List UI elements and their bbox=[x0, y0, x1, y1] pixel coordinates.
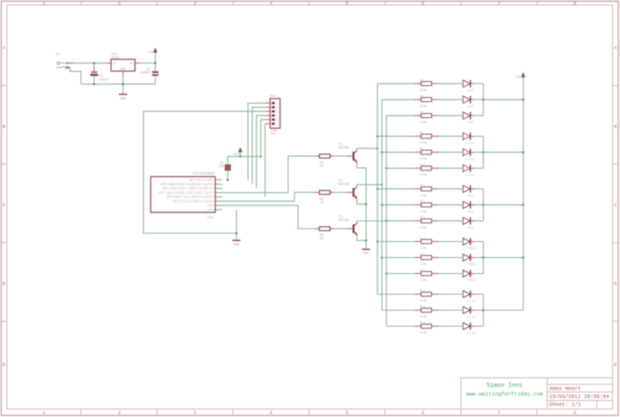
svg-text:+5V: +5V bbox=[147, 50, 153, 54]
svg-text:LED6: LED6 bbox=[467, 174, 474, 177]
svg-text:1: 1 bbox=[43, 1, 46, 7]
svg-text:150R: 150R bbox=[420, 263, 427, 266]
svg-text:150R: 150R bbox=[420, 174, 427, 177]
svg-text:VI: VI bbox=[113, 63, 117, 66]
svg-text:VO: VO bbox=[130, 63, 134, 66]
svg-text:Simon Inns: Simon Inns bbox=[486, 382, 522, 389]
svg-text:R15: R15 bbox=[420, 253, 426, 256]
svg-text:R9: R9 bbox=[420, 147, 424, 150]
svg-text:R11: R11 bbox=[420, 184, 426, 187]
svg-text:8: 8 bbox=[573, 1, 576, 7]
svg-text:E: E bbox=[614, 362, 617, 368]
svg-text:LED12: LED12 bbox=[467, 279, 476, 282]
svg-text:LED11: LED11 bbox=[467, 263, 476, 266]
svg-text:C: C bbox=[3, 203, 6, 209]
svg-text:VSS: VSS bbox=[207, 209, 213, 213]
svg-text:LED2: LED2 bbox=[467, 105, 474, 108]
svg-text:R12: R12 bbox=[420, 200, 426, 203]
svg-text:4: 4 bbox=[270, 410, 273, 416]
svg-text:GND: GND bbox=[233, 242, 239, 246]
svg-text:GND: GND bbox=[120, 68, 125, 71]
svg-text:R7: R7 bbox=[420, 111, 424, 114]
svg-text:150R: 150R bbox=[420, 194, 427, 197]
svg-text:5: 5 bbox=[346, 1, 349, 7]
svg-text:GP5/T1CKI/OSC1/CLKIN: GP5/T1CKI/OSC1/CLKIN bbox=[173, 199, 214, 204]
svg-text:PIC12F683P: PIC12F683P bbox=[193, 173, 216, 177]
svg-text:1K: 1K bbox=[320, 200, 324, 204]
svg-text:GP1/AN1/CIN-/VREF/ICSPCLK: GP1/AN1/CIN-/VREF/ICSPCLK bbox=[163, 187, 215, 192]
svg-text:150R: 150R bbox=[420, 316, 427, 319]
svg-text:GND: GND bbox=[120, 96, 126, 100]
svg-text:150R: 150R bbox=[420, 300, 427, 303]
svg-text:+5V: +5V bbox=[515, 75, 521, 79]
svg-text:GP0/AN0/CIN+/ICSPDAT/ULPWU: GP0/AN0/CIN+/ICSPDAT/ULPWU bbox=[161, 182, 214, 187]
svg-text:150R: 150R bbox=[420, 279, 427, 282]
svg-text:B: B bbox=[3, 124, 6, 130]
svg-text:D: D bbox=[3, 281, 6, 287]
svg-text:3: 3 bbox=[194, 1, 197, 7]
svg-text:R19: R19 bbox=[420, 321, 426, 324]
svg-text:3: 3 bbox=[194, 410, 197, 416]
svg-text:E: E bbox=[3, 362, 6, 368]
svg-text:X1: X1 bbox=[56, 54, 60, 58]
svg-text:IC2: IC2 bbox=[207, 216, 213, 220]
svg-text:6: 6 bbox=[422, 410, 425, 416]
svg-text:A: A bbox=[3, 45, 6, 51]
svg-text:LED5: LED5 bbox=[467, 158, 474, 161]
svg-text:7805: 7805 bbox=[111, 57, 120, 61]
svg-text:B: B bbox=[614, 124, 617, 130]
svg-text:R14: R14 bbox=[420, 237, 426, 240]
svg-text:150R: 150R bbox=[420, 89, 427, 92]
svg-text:2: 2 bbox=[118, 410, 121, 416]
svg-text:150R: 150R bbox=[420, 210, 427, 213]
svg-text:150R: 150R bbox=[420, 105, 427, 108]
svg-text:Sheet: 1/1: Sheet: 1/1 bbox=[549, 402, 581, 408]
svg-text:R18: R18 bbox=[420, 305, 426, 308]
svg-text:LED7: LED7 bbox=[467, 195, 474, 198]
svg-text:1X6: 1X6 bbox=[270, 132, 275, 135]
svg-text:GP3/MCLR/VPP: GP3/MCLR/VPP bbox=[189, 178, 213, 183]
svg-text:R5: R5 bbox=[420, 79, 424, 82]
svg-text:150R: 150R bbox=[420, 226, 427, 229]
svg-text:LED1: LED1 bbox=[467, 89, 474, 92]
svg-text:150R: 150R bbox=[420, 158, 427, 161]
svg-text:LED10: LED10 bbox=[467, 247, 476, 250]
svg-text:R13: R13 bbox=[420, 216, 426, 219]
svg-text:7: 7 bbox=[498, 1, 501, 7]
svg-text:D: D bbox=[614, 281, 617, 287]
svg-text:BC548: BC548 bbox=[339, 147, 349, 151]
svg-text:220uF: 220uF bbox=[99, 78, 109, 82]
svg-text:100nF: 100nF bbox=[140, 71, 150, 75]
svg-text:LED8: LED8 bbox=[467, 211, 474, 214]
svg-text:2: 2 bbox=[118, 1, 121, 7]
svg-text:150R: 150R bbox=[420, 121, 427, 124]
svg-text:R8: R8 bbox=[420, 131, 424, 134]
svg-text:10K: 10K bbox=[218, 164, 224, 168]
svg-text:+5V: +5V bbox=[233, 152, 239, 156]
svg-text:C: C bbox=[614, 203, 617, 209]
svg-text:1K: 1K bbox=[320, 164, 324, 168]
svg-text:R16: R16 bbox=[420, 269, 426, 272]
svg-text:4: 4 bbox=[270, 1, 273, 7]
svg-text:1: 1 bbox=[43, 410, 46, 416]
svg-text:150R: 150R bbox=[420, 332, 427, 335]
svg-text:SV1: SV1 bbox=[270, 95, 276, 99]
svg-text:LED15: LED15 bbox=[467, 332, 476, 335]
svg-text:15/03/2011 20:56:54: 15/03/2011 20:56:54 bbox=[549, 394, 609, 400]
svg-text:LED3: LED3 bbox=[467, 121, 474, 124]
svg-text:LED9: LED9 bbox=[467, 227, 474, 230]
svg-text:8: 8 bbox=[573, 410, 576, 416]
svg-text:GP2/AN2/T0CKI/INT/COUT/CCP1: GP2/AN2/T0CKI/INT/COUT/CCP1 bbox=[159, 191, 214, 196]
svg-text:Xmas Heart: Xmas Heart bbox=[549, 386, 581, 392]
svg-text:GND: GND bbox=[363, 251, 369, 255]
svg-text:R6: R6 bbox=[420, 95, 424, 98]
svg-text:7: 7 bbox=[498, 410, 501, 416]
svg-text:BC548: BC548 bbox=[339, 183, 349, 187]
svg-text:LED13: LED13 bbox=[467, 300, 476, 303]
svg-text:A: A bbox=[614, 45, 617, 51]
svg-text:LED4: LED4 bbox=[467, 142, 474, 145]
svg-text:1K: 1K bbox=[320, 237, 324, 241]
svg-text:R17: R17 bbox=[420, 289, 426, 292]
svg-text:R10: R10 bbox=[420, 163, 426, 166]
svg-text:6: 6 bbox=[422, 1, 425, 7]
svg-text:BC548: BC548 bbox=[339, 219, 349, 223]
svg-text:5: 5 bbox=[346, 410, 349, 416]
svg-text:LED14: LED14 bbox=[467, 316, 476, 319]
svg-text:150R: 150R bbox=[420, 247, 427, 250]
svg-text:www.waitingforfriday.com: www.waitingforfriday.com bbox=[466, 391, 543, 397]
svg-text:150R: 150R bbox=[420, 142, 427, 145]
svg-text:GP4/AN3/T1G/OSC2/CLKOUT: GP4/AN3/T1G/OSC2/CLKOUT bbox=[167, 195, 214, 200]
